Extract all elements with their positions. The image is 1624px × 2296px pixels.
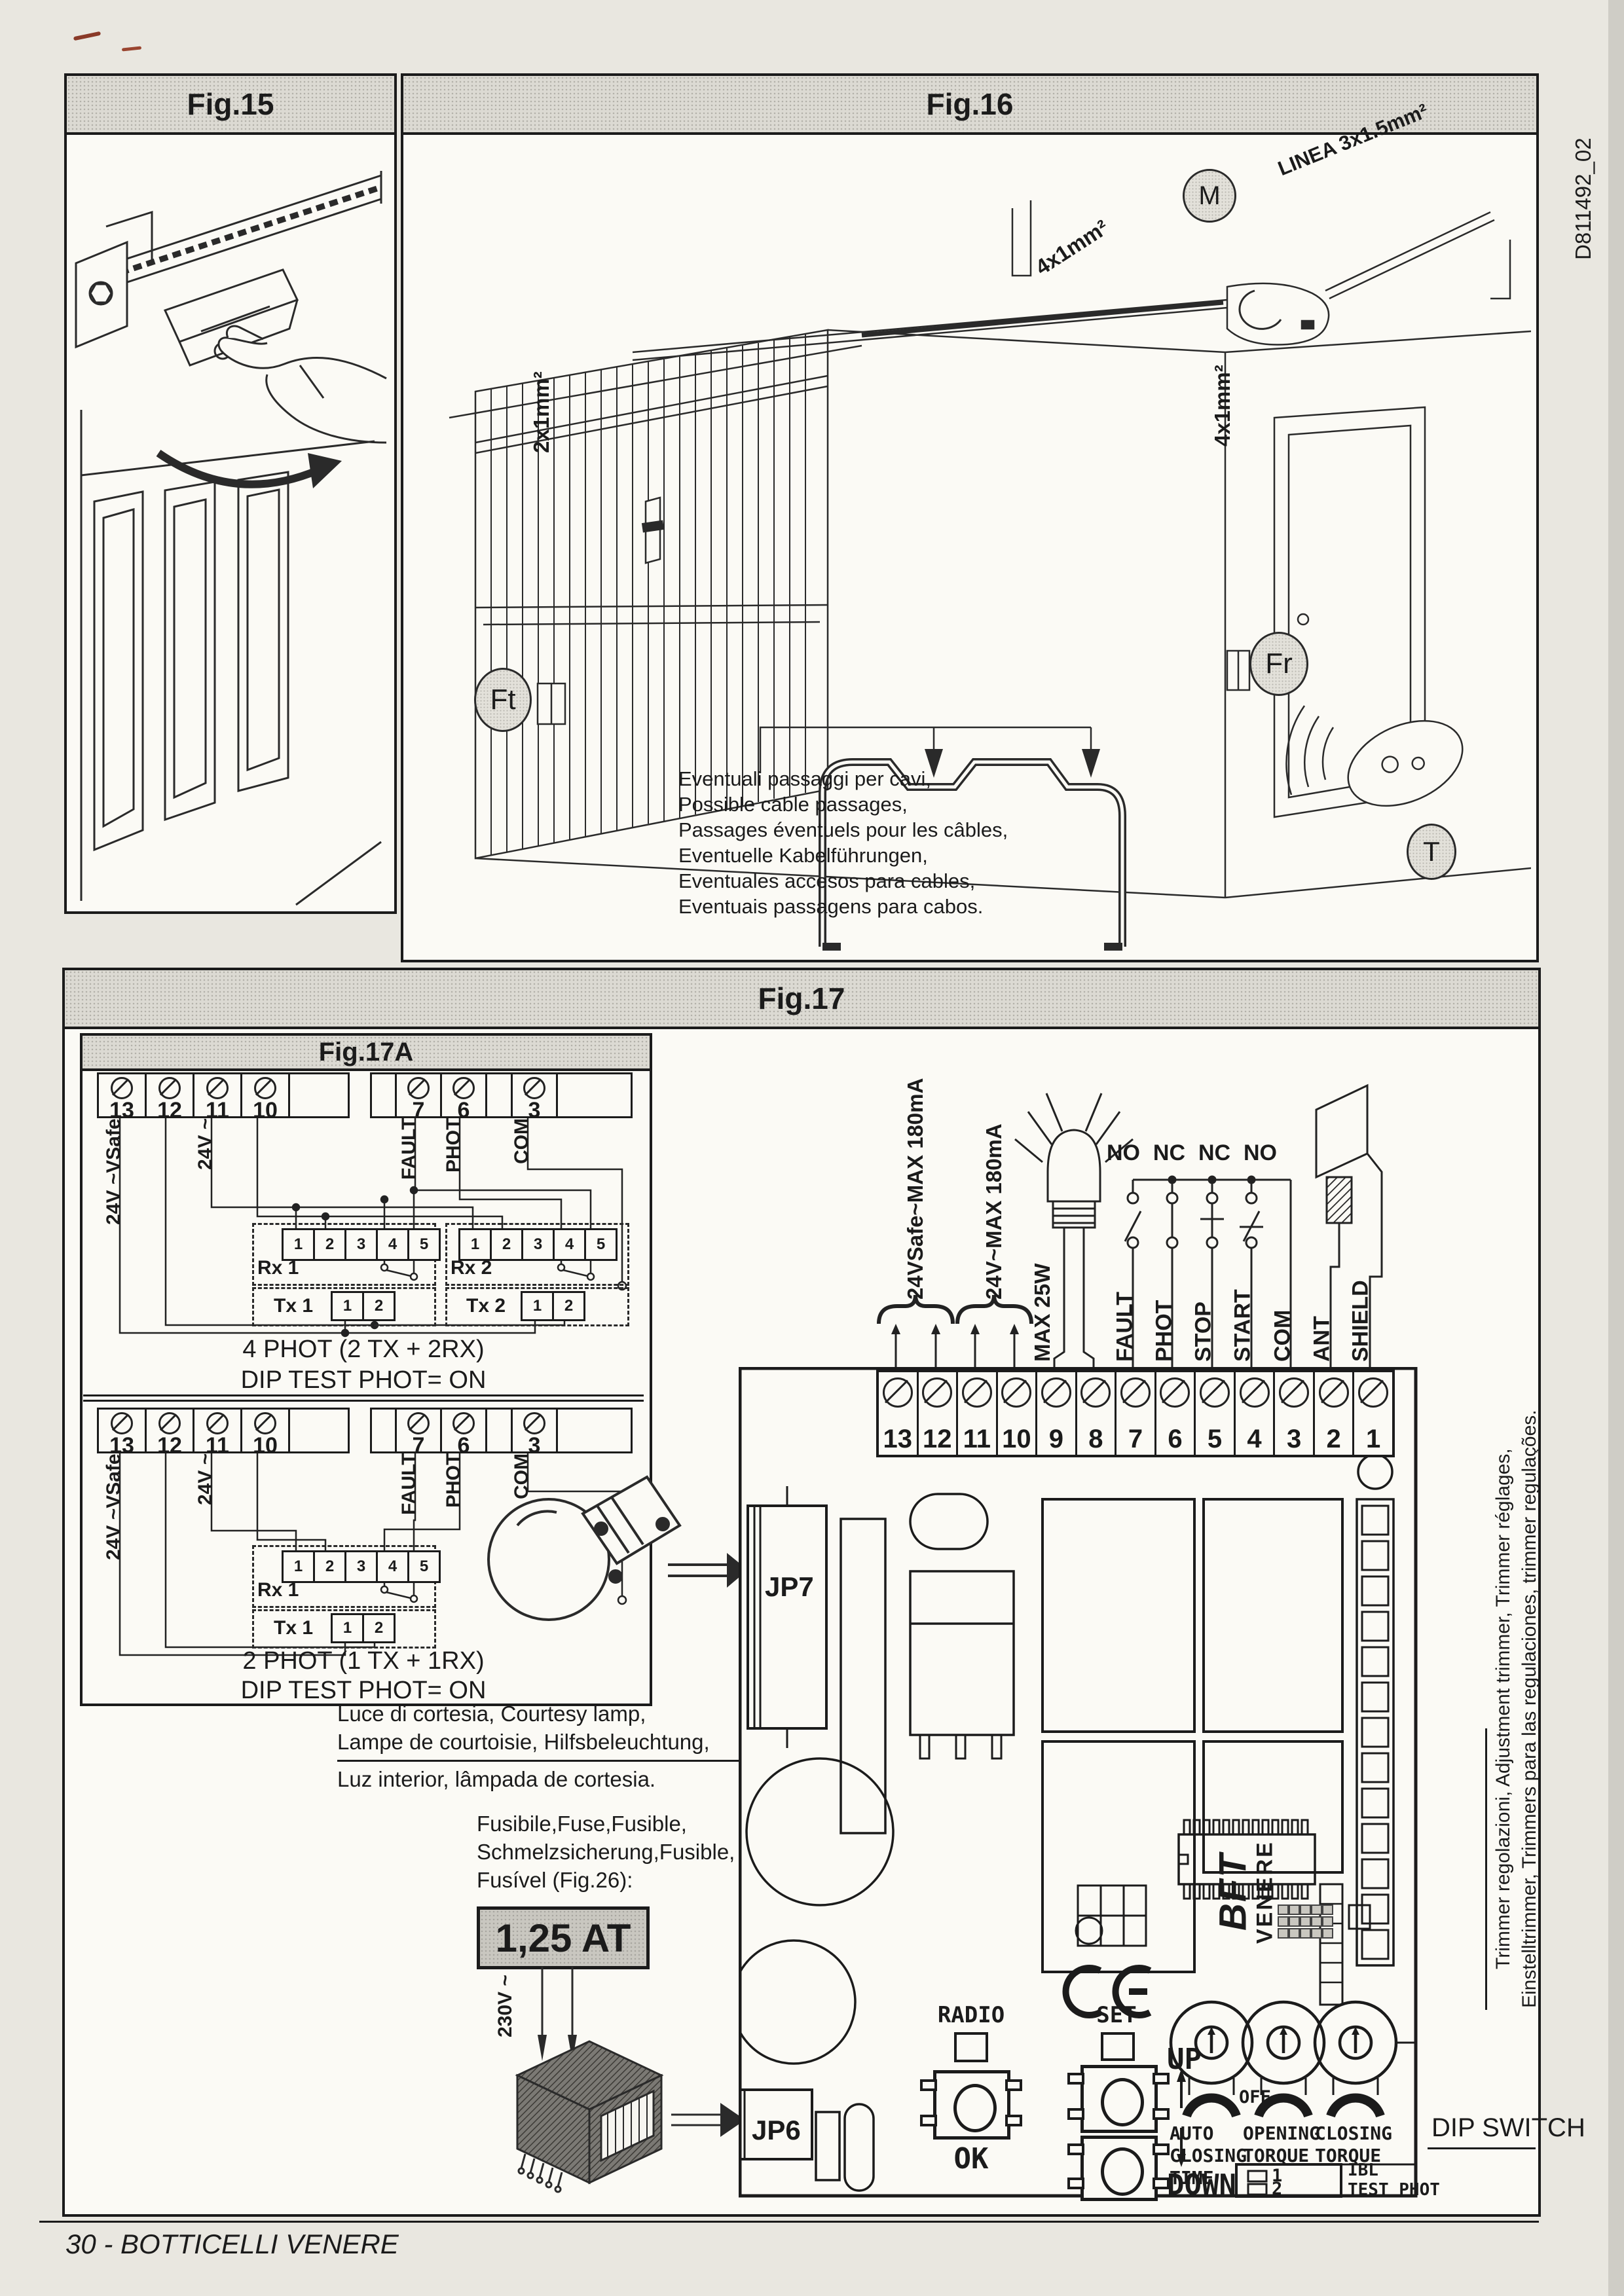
fig15-title: Fig.15: [187, 86, 274, 122]
terminal-number: 4: [1247, 1426, 1261, 1452]
signal-shield: SHIELD: [1349, 1243, 1373, 1362]
dip-switch-underline: [1428, 2147, 1536, 2149]
screw-icon: [1279, 1377, 1309, 1408]
label-com: COM: [511, 1118, 533, 1216]
terminal-number: 10: [1002, 1426, 1031, 1452]
terminal-number: 8: [1088, 1426, 1103, 1452]
ok-label: OK: [930, 2142, 1012, 2176]
t-badge: T: [1407, 824, 1456, 880]
fig15-header: Fig.15: [67, 76, 394, 135]
venere-logo: VENERE: [1252, 1827, 1278, 1958]
screw-icon: [452, 1077, 475, 1099]
set-label: SET: [1077, 2002, 1156, 2028]
label-phot: PHOT: [443, 1118, 465, 1233]
side-note-line1: Trimmer regolazioni, Adjustment trimmer,…: [1490, 1401, 1517, 2016]
screw-icon: [1041, 1377, 1071, 1408]
contact-nc: NC: [1153, 1140, 1185, 1166]
jp7-label: JP7: [765, 1571, 814, 1603]
fr-label: Fr: [1265, 647, 1293, 680]
down-button[interactable]: [1080, 2136, 1158, 2201]
page-edge: [1608, 0, 1624, 2296]
label-fault: FAULT: [398, 1118, 420, 1233]
signal-stop: STOP: [1192, 1264, 1215, 1362]
fuse-line: Schmelzsicherung,Fusible,: [477, 1838, 735, 1866]
terminal-number: 11: [963, 1426, 991, 1452]
screw-icon: [1319, 1377, 1349, 1408]
screw-icon: [111, 1412, 133, 1434]
screw-icon: [1160, 1377, 1190, 1408]
screw-icon: [254, 1412, 276, 1434]
side-note-rule: [1485, 1728, 1487, 2010]
transformer-drawing: [458, 1958, 754, 2206]
cable-passages-text: Eventuali passaggi per cavi,Possible cab…: [678, 766, 1008, 919]
fig17-title: Fig.17: [758, 981, 845, 1016]
fig16-title: Fig.16: [927, 86, 1014, 122]
courtesy-text-top: Luce di cortesia, Courtesy lamp, Lampe d…: [337, 1700, 710, 1756]
screw-icon: [407, 1412, 430, 1434]
signal-ant: ANT: [1310, 1300, 1334, 1362]
fig17-header: Fig.17: [65, 970, 1538, 1029]
screw-icon: [206, 1412, 229, 1434]
terminal-number: 12: [157, 1099, 182, 1121]
up-button[interactable]: [1080, 2065, 1158, 2133]
fig17a-divider: [83, 1394, 644, 1396]
screw-icon: [922, 1377, 952, 1408]
trim-word: OPENING: [1243, 2123, 1320, 2145]
ok-button[interactable]: [933, 2070, 1010, 2140]
contact-no: NO: [1107, 1140, 1140, 1166]
contact-nc: NC: [1198, 1140, 1230, 1166]
motor-label: M: [1198, 181, 1220, 211]
cable-left-label: 2x1mm²: [527, 327, 556, 498]
trimmer2-label: OPENING TORQUE: [1243, 2123, 1320, 2167]
contact-types: NO NC NC NO: [1107, 1140, 1277, 1166]
button-leg: [1067, 2178, 1084, 2189]
label-max25w: MAX 25W: [1029, 1205, 1056, 1362]
ft-badge: Ft: [474, 668, 532, 732]
dip2-label: 2: [1272, 2179, 1282, 2199]
fuse-line: Fusível (Fig.26):: [477, 1866, 735, 1894]
signal-com: COM: [1271, 1285, 1295, 1362]
test-phot-label: TEST PHOT: [1348, 2180, 1440, 2200]
trim-word: CLOSING: [1315, 2123, 1392, 2145]
cable-passages-line: Possible cable passages,: [678, 792, 1008, 817]
caption-4phot: 4 PHOT (2 TX + 2RX) DIP TEST PHOT= ON: [80, 1336, 647, 1394]
fig15-drawing: [67, 135, 389, 906]
courtesy-lamp-drawing: [452, 1408, 748, 1683]
screw-icon: [962, 1377, 992, 1408]
cable-passages-line: Eventuali passaggi per cavi,: [678, 766, 1008, 792]
doc-code: D811492_02: [1569, 56, 1598, 260]
cable-passages-line: Eventuelle Kabelführungen,: [678, 843, 1008, 868]
terminal-number: 6: [1168, 1426, 1182, 1452]
button-leg: [1153, 2143, 1170, 2155]
rx1-pins: 12345: [282, 1550, 439, 1583]
tx1-pins: 12: [331, 1291, 394, 1321]
terminal-number: 7: [1128, 1426, 1143, 1452]
trim-word: CLOSING: [1170, 2145, 1247, 2167]
terminal-number: 12: [923, 1426, 952, 1452]
rx1-label: Rx 1: [257, 1257, 299, 1279]
label-24vsafe: 24V ~VSafe: [102, 1118, 126, 1315]
screw-icon: [407, 1077, 430, 1099]
screw-icon: [523, 1077, 545, 1099]
radio-led: [954, 2032, 988, 2062]
screw-icon: [111, 1077, 133, 1099]
ibl-label: IBL: [1348, 2160, 1378, 2180]
rx1-pins: 12345: [282, 1228, 439, 1261]
button-leg: [920, 2079, 937, 2091]
ft-label: Ft: [490, 683, 515, 716]
courtesy-line: Luz interior, lâmpada de cortesia.: [337, 1765, 655, 1793]
label-24vsafe: 24V ~VSafe: [102, 1453, 126, 1650]
fig17a-divider: [83, 1400, 644, 1402]
caption-4phot-line2: DIP TEST PHOT= ON: [80, 1366, 647, 1394]
trimmer1-label: AUTO CLOSING TIME: [1170, 2123, 1247, 2189]
screw-icon: [1001, 1377, 1031, 1408]
button-leg: [1067, 2143, 1084, 2155]
page-footer: 30 - BOTTICELLI VENERE: [65, 2229, 399, 2260]
screw-icon: [1080, 1377, 1111, 1408]
label-24v: 24V ~: [194, 1118, 217, 1223]
button-leg: [1067, 2108, 1084, 2120]
off-label: OFF: [1239, 2087, 1271, 2107]
courtesy-line: Luce di cortesia, Courtesy lamp,: [337, 1700, 710, 1728]
radio-label: RADIO: [930, 2002, 1012, 2028]
tx2-pins: 12: [521, 1291, 583, 1321]
trim-word: TORQUE: [1243, 2145, 1320, 2167]
terminal-number: 9: [1049, 1426, 1063, 1452]
fuse-line: Fusibile,Fuse,Fusible,: [477, 1810, 735, 1838]
fig17a-top-right-terminals: 7 6 3: [370, 1072, 633, 1118]
button-leg: [1005, 2115, 1022, 2126]
jp6-label: JP6: [752, 2115, 801, 2146]
pen-mark: [122, 46, 141, 51]
manual-page: Fig.15: [0, 0, 1624, 2296]
courtesy-text-bottom: Luz interior, lâmpada de cortesia.: [337, 1765, 655, 1793]
cable-passages-line: Passages éventuels pour les câbles,: [678, 817, 1008, 843]
courtesy-line: Lampe de courtoisie, Hilfsbeleuchtung,: [337, 1728, 710, 1756]
rx2-label: Rx 2: [451, 1257, 492, 1279]
terminal-number: 13: [883, 1426, 913, 1452]
cable-right-label: 4x1mm²: [1208, 321, 1237, 491]
button-leg: [1153, 2108, 1170, 2120]
contact-no: NO: [1244, 1140, 1277, 1166]
screw-icon: [158, 1077, 181, 1099]
cable-passages-line: Eventuais passagens para cabos.: [678, 894, 1008, 919]
footer-rule: [39, 2221, 1539, 2223]
button-leg: [1005, 2079, 1022, 2091]
screw-icon: [1358, 1377, 1388, 1408]
cable-passages-line: Eventuales accesos para cables,: [678, 868, 1008, 894]
tx1-label: Tx 1: [274, 1617, 313, 1639]
caption-4phot-line1: 4 PHOT (2 TX + 2RX): [80, 1336, 647, 1364]
bft-brand: BFT: [1211, 1853, 1255, 1931]
signal-phot: PHOT: [1153, 1264, 1176, 1362]
fuse-rating: 1,25 AT: [496, 1916, 631, 1961]
motor-badge: M: [1183, 169, 1236, 223]
terminal-number: 5: [1208, 1426, 1222, 1452]
fig17a-top-left-terminals: 13121110: [97, 1072, 350, 1118]
trim-word: TIME: [1170, 2167, 1247, 2189]
label-24v-max: 24V~MAX 180mA: [981, 1113, 1007, 1300]
board-top-annotations: [740, 1074, 1552, 1370]
screw-icon: [158, 1412, 181, 1434]
courtesy-rule: [337, 1760, 740, 1762]
fig17a-bottom-left-terminals: 13121110: [97, 1408, 350, 1453]
rx2-pins: 12345: [458, 1228, 616, 1261]
rx1-label: Rx 1: [257, 1579, 299, 1601]
signal-start: START: [1231, 1252, 1255, 1362]
tx2-label: Tx 2: [466, 1295, 506, 1317]
fr-badge: Fr: [1249, 632, 1308, 696]
terminal-number: 10: [253, 1099, 278, 1121]
label-24v: 24V ~: [194, 1453, 217, 1558]
screw-icon: [1240, 1377, 1270, 1408]
terminal-number: 12: [157, 1434, 182, 1457]
screw-icon: [254, 1077, 276, 1099]
tx1-pins: 12: [331, 1613, 394, 1643]
set-led: [1101, 2032, 1135, 2061]
button-leg: [920, 2115, 937, 2126]
terminal-number: 2: [1326, 1426, 1340, 1452]
pen-mark: [73, 31, 101, 41]
screw-icon: [206, 1077, 229, 1099]
tx1-label: Tx 1: [274, 1295, 313, 1317]
side-note-line2: Einstelltrimmer, Trimmers para las regul…: [1517, 1401, 1543, 2016]
label-24vsafe-max: 24VSafe~MAX 180mA: [902, 1077, 929, 1300]
bft-logo: BFT: [1210, 1827, 1256, 1958]
screw-icon: [883, 1377, 913, 1408]
t-label: T: [1423, 836, 1440, 867]
terminal-number: 3: [1287, 1426, 1301, 1452]
terminal-number: 10: [253, 1434, 278, 1457]
terminal-strip: 13121110987654321: [876, 1370, 1395, 1457]
terminal-number: 1: [1366, 1426, 1380, 1452]
signal-fault: FAULT: [1113, 1252, 1137, 1362]
button-leg: [1067, 2073, 1084, 2085]
screw-icon: [1120, 1377, 1151, 1408]
dip-switch-label: DIP SWITCH: [1431, 2113, 1585, 2143]
fig15-box: Fig.15: [64, 73, 397, 914]
trim-word: AUTO: [1170, 2123, 1247, 2145]
screw-icon: [1200, 1377, 1230, 1408]
fuse-text: Fusibile,Fuse,Fusible,Schmelzsicherung,F…: [477, 1810, 735, 1894]
